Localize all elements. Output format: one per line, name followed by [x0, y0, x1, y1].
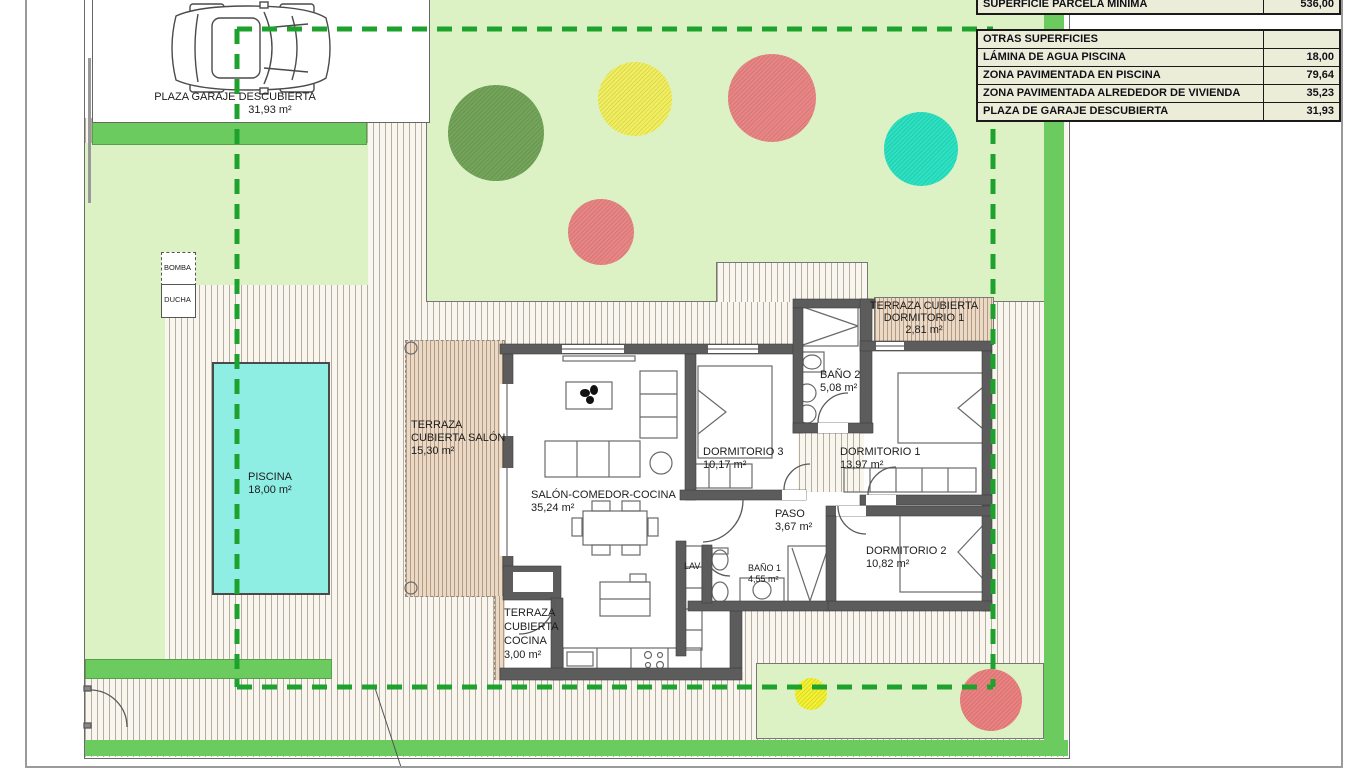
table-row-value: 79,64	[1264, 67, 1339, 84]
terrace-cocina-label: TERRAZACUBIERTA COCINA3,00 m²	[504, 606, 559, 662]
table-header-value	[1264, 31, 1339, 48]
table-cell-value: 536,00	[1264, 0, 1339, 13]
salon-label: SALÓN-COMEDOR-COCINA35,24 m²	[531, 489, 676, 515]
table-header-label: OTRAS SUPERFICIES	[978, 31, 1264, 48]
dormitorio1-label: DORMITORIO 113,97 m²	[840, 446, 920, 472]
table-cell-label: SUPERFICIE PARCELA MINIMA	[978, 0, 1264, 13]
table-row-value: 35,23	[1264, 85, 1339, 102]
lav-label: LAV	[684, 561, 700, 572]
summary-table: OTRAS SUPERFICIES LÁMINA DE AGUA PISCINA…	[976, 29, 1341, 122]
table-row-label: ZONA PAVIMENTADA EN PISCINA	[978, 67, 1264, 84]
table-row-value: 31,93	[1264, 103, 1339, 120]
terrace-salon-label: TERRAZACUBIERTA SALÓN15,30 m²	[411, 419, 505, 458]
dormitorio2-label: DORMITORIO 210,82 m²	[866, 545, 946, 571]
room-interiors	[505, 302, 988, 672]
table-row-value: 18,00	[1264, 49, 1339, 66]
shower-label: DUCHA	[161, 295, 194, 304]
car-icon	[172, 2, 330, 94]
terrace-dorm1-label: TERRAZA CUBIERTADORMITORIO 12,81 m²	[858, 300, 990, 336]
table-row-label: LÁMINA DE AGUA PISCINA	[978, 49, 1264, 66]
bano1-label: BAÑO 14,55 m²	[748, 563, 781, 585]
garage-label: PLAZA GARAJE DESCUBIERTA	[140, 91, 330, 104]
garage-area: 31,93 m²	[230, 104, 310, 117]
site-plan: PLAZA GARAJE DESCUBIERTA 31,93 m² BOMBA …	[0, 0, 1366, 768]
summary-table-toprow: SUPERFICIE PARCELA MINIMA 536,00	[976, 0, 1341, 13]
paso-label: PASO3,67 m²	[775, 508, 812, 534]
pool-label: PISCINA18,00 m²	[230, 471, 310, 497]
dormitorio3-label: DORMITORIO 310,17 m²	[703, 446, 783, 472]
pump-label: BOMBA	[161, 263, 194, 272]
table-row-label: ZONA PAVIMENTADA ALREDEDOR DE VIVIENDA	[978, 85, 1264, 102]
table-row-label: PLAZA DE GARAJE DESCUBIERTA	[978, 103, 1264, 120]
leader-line	[375, 688, 401, 767]
bano2-label: BAÑO 25,08 m²	[820, 369, 860, 395]
